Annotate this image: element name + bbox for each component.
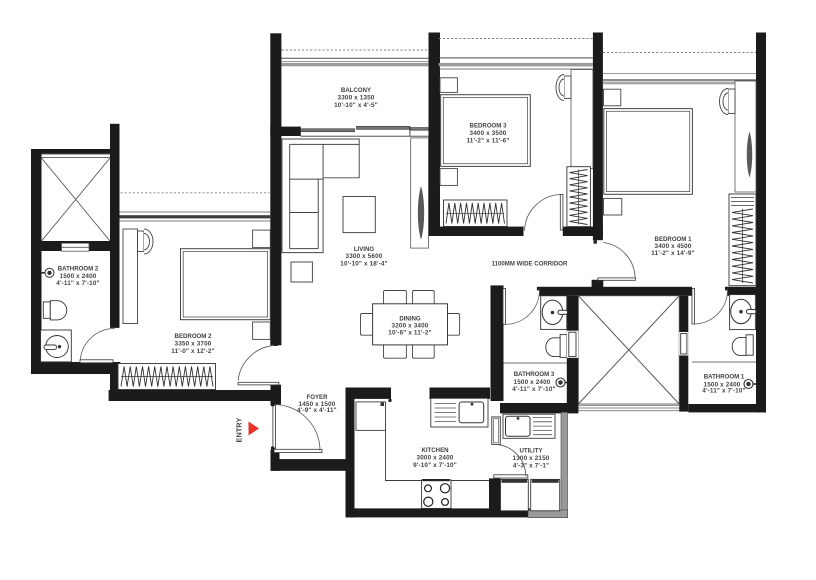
- svg-text:11'-2" x 11'-6": 11'-2" x 11'-6": [466, 138, 509, 145]
- svg-text:KITCHEN: KITCHEN: [421, 447, 448, 454]
- svg-text:1500 x 2400: 1500 x 2400: [514, 379, 551, 386]
- svg-text:4'-3" x 7'-1": 4'-3" x 7'-1": [513, 463, 549, 470]
- svg-text:DINING: DINING: [399, 316, 421, 323]
- svg-text:1500 x 2400: 1500 x 2400: [60, 273, 97, 280]
- svg-text:BALCONY: BALCONY: [341, 87, 371, 94]
- svg-text:ENTRY: ENTRY: [235, 417, 244, 442]
- svg-text:1100MM WIDE CORRIDOR: 1100MM WIDE CORRIDOR: [492, 260, 568, 267]
- svg-text:3400 x 3500: 3400 x 3500: [470, 130, 507, 137]
- svg-text:BATHROOM 2: BATHROOM 2: [58, 265, 99, 272]
- svg-text:BEDROOM 2: BEDROOM 2: [175, 333, 213, 340]
- svg-text:BATHROOM 3: BATHROOM 3: [514, 371, 555, 378]
- svg-text:11'-2" x 14'-9": 11'-2" x 14'-9": [651, 250, 694, 257]
- svg-text:3300 x 1350: 3300 x 1350: [338, 95, 375, 102]
- svg-text:3300 x 5600: 3300 x 5600: [346, 253, 383, 260]
- svg-text:FOYER: FOYER: [307, 394, 329, 401]
- svg-text:4'-11" x 7'-10": 4'-11" x 7'-10": [512, 386, 555, 393]
- svg-text:BEDROOM 3: BEDROOM 3: [470, 123, 508, 130]
- svg-text:4'-11" x 7'-10": 4'-11" x 7'-10": [56, 280, 99, 287]
- svg-text:LIVING: LIVING: [354, 246, 375, 253]
- svg-text:BATHROOM 1: BATHROOM 1: [704, 374, 745, 381]
- svg-text:11'-0" x 12'-2": 11'-0" x 12'-2": [171, 348, 214, 355]
- svg-text:4'-11" x 7'-10": 4'-11" x 7'-10": [702, 388, 745, 395]
- svg-text:3400 x 4500: 3400 x 4500: [655, 243, 692, 250]
- svg-text:9'-10" x 7'-10": 9'-10" x 7'-10": [413, 462, 457, 469]
- svg-text:10'-6" x 11'-2": 10'-6" x 11'-2": [388, 329, 431, 336]
- svg-text:10'-10" x 18'-4": 10'-10" x 18'-4": [340, 260, 387, 267]
- svg-text:3350 x 3700: 3350 x 3700: [175, 341, 212, 348]
- svg-text:UTILITY: UTILITY: [519, 448, 542, 455]
- svg-text:10'-10" x 4'-5": 10'-10" x 4'-5": [334, 102, 378, 109]
- svg-text:3000 x 2400: 3000 x 2400: [417, 455, 454, 462]
- svg-text:4'-9" x 4'-11": 4'-9" x 4'-11": [297, 407, 337, 414]
- svg-text:BEDROOM 1: BEDROOM 1: [655, 236, 693, 243]
